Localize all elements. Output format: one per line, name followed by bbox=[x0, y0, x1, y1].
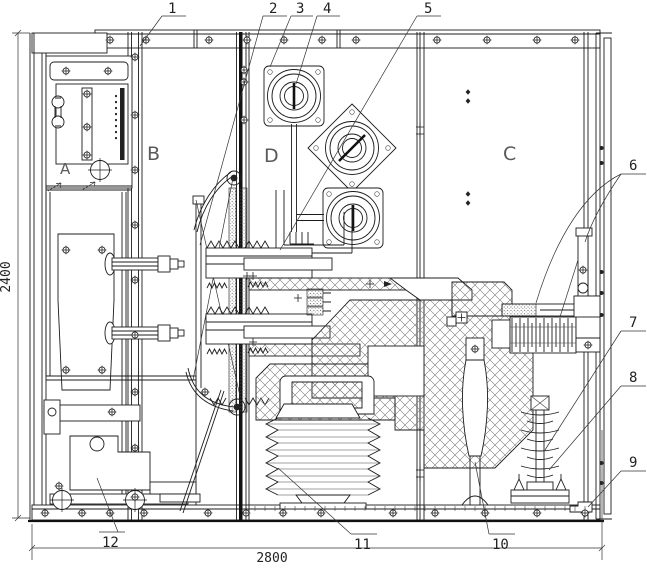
draw-rod bbox=[502, 304, 580, 316]
drawing-canvas: 2400 2800 1 2 3 4 5 6 7 8 9 10 11 12 A bbox=[0, 0, 647, 577]
compartment-c-label: C bbox=[503, 143, 516, 165]
compartment-a-assembly bbox=[46, 56, 132, 191]
callout-3: 3 bbox=[296, 1, 304, 17]
callout-6: 6 bbox=[629, 158, 637, 174]
callout-4: 4 bbox=[323, 1, 331, 17]
callout-5: 5 bbox=[424, 1, 432, 17]
callout-9: 9 bbox=[629, 455, 637, 471]
switchgear-section-drawing: 2400 2800 1 2 3 4 5 6 7 8 9 10 11 12 A bbox=[0, 0, 647, 577]
callout-11: 11 bbox=[354, 537, 371, 553]
insulation-window bbox=[368, 346, 424, 396]
callout-2: 2 bbox=[269, 1, 277, 17]
dim-width-label: 2800 bbox=[256, 551, 287, 566]
compartment-d-label: D bbox=[264, 145, 279, 167]
callout-8: 8 bbox=[629, 370, 637, 386]
callout-12: 12 bbox=[102, 535, 119, 551]
callout-7: 7 bbox=[629, 315, 637, 331]
callout-10: 10 bbox=[492, 537, 509, 553]
compartment-a-label: A bbox=[60, 160, 71, 178]
dim-height-label: 2400 bbox=[0, 261, 14, 292]
callout-1: 1 bbox=[168, 1, 176, 17]
compartment-b-label: B bbox=[147, 143, 160, 165]
panel-hole bbox=[90, 437, 104, 451]
